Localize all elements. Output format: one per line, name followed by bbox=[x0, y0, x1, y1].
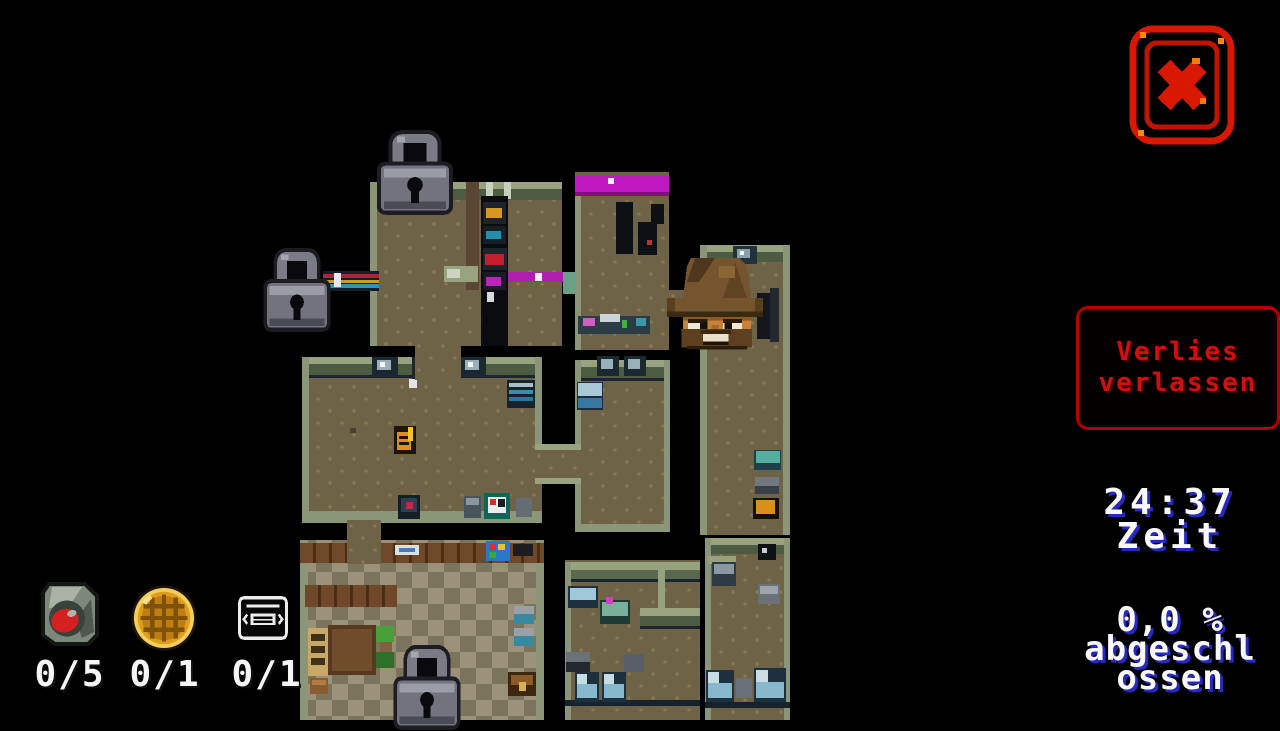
close-button[interactable] bbox=[1128, 24, 1236, 146]
corridor-mid-link-wall-top bbox=[535, 444, 581, 450]
ceiling-camera-d2-dot bbox=[468, 362, 473, 367]
yellow-crate-top bbox=[756, 500, 775, 514]
floor-speck bbox=[350, 428, 356, 433]
g-passage-wall-line bbox=[640, 626, 700, 629]
dark-cabinet-side bbox=[770, 288, 779, 342]
blue-cabinet-top bbox=[578, 383, 602, 396]
h-bed-1-sheet bbox=[708, 683, 732, 698]
h-grey-box bbox=[736, 678, 752, 698]
timer-value: 24:37 bbox=[1060, 486, 1280, 520]
corridor-bottom-left bbox=[347, 520, 381, 564]
timer-label: Zeit bbox=[1060, 520, 1280, 554]
counter-item-toy-red bbox=[489, 544, 496, 550]
stairs-step-3 bbox=[509, 397, 533, 401]
room-bottom-mid-top-wall-line bbox=[565, 579, 700, 582]
g-table-item bbox=[606, 597, 613, 604]
counter-item-tape-stripe bbox=[399, 548, 415, 552]
room-bottom-mid-top-wall-light bbox=[565, 562, 700, 570]
g-bed-3-sheet bbox=[604, 684, 624, 698]
machine-white-bit bbox=[487, 292, 494, 302]
tv-dot-red bbox=[490, 499, 496, 505]
shop-device-1-top bbox=[514, 606, 534, 614]
g-passage-wall-dark bbox=[640, 616, 700, 626]
room-top-right-magenta-dark bbox=[575, 192, 669, 196]
bookshelf-slot-2 bbox=[311, 646, 325, 653]
room-bottom-mid-top-wall-dark bbox=[565, 570, 700, 579]
console-box-dot bbox=[406, 502, 413, 509]
g-bed-2-sheet bbox=[577, 684, 597, 698]
server-red-dot bbox=[647, 240, 652, 245]
room-mid-right-top-wall-line bbox=[575, 378, 670, 381]
plant-top bbox=[376, 626, 394, 642]
lab-desk-item-pink bbox=[583, 318, 595, 326]
g-passage-wall-light bbox=[640, 608, 700, 616]
g-machine-2 bbox=[624, 654, 644, 672]
magenta-door-dot bbox=[535, 273, 542, 281]
waffle-count: 0/1 bbox=[120, 654, 210, 695]
vhs-tape-count: 0/1 bbox=[222, 654, 312, 695]
padlock-icon-2 bbox=[261, 248, 333, 333]
room-bottom-left-right-wall bbox=[536, 540, 544, 720]
enemy-alert bbox=[408, 427, 413, 441]
waffle-icon bbox=[128, 583, 200, 653]
room-mid-left-left-wall bbox=[302, 357, 309, 523]
enemy-stripe-2 bbox=[399, 442, 409, 445]
teal-door bbox=[563, 272, 576, 294]
machine-red bbox=[485, 254, 504, 265]
h-bottom-line bbox=[705, 702, 790, 708]
ceiling-camera-d1-dot bbox=[380, 362, 385, 367]
security-button-icon bbox=[32, 578, 108, 650]
room-bottom-right-top-wall-light bbox=[705, 538, 790, 545]
counter-item-toy-green bbox=[489, 552, 496, 558]
game-screen: 0/5 0/1 bbox=[0, 0, 1280, 720]
shop-device-2-top bbox=[514, 628, 534, 636]
padlock-icon-1 bbox=[374, 130, 456, 216]
h-bed-1-pillow bbox=[708, 672, 719, 683]
h-bed-2-pillow bbox=[756, 670, 768, 682]
machine-yellow bbox=[486, 208, 502, 218]
wall-ledge-inner bbox=[447, 269, 460, 278]
exit-button-label-line1: Verlies bbox=[1116, 337, 1240, 368]
collectible-security-button bbox=[32, 578, 108, 650]
teal-table-top bbox=[756, 451, 780, 463]
server-pillar-3 bbox=[651, 204, 664, 224]
corridor-mid-link bbox=[535, 450, 581, 478]
player-marker-hopper-head bbox=[663, 250, 767, 350]
lab-desk-item-green bbox=[622, 320, 627, 328]
shop-counter-2 bbox=[305, 585, 397, 607]
counter-item-toy-yellow bbox=[498, 544, 505, 550]
corridor-top bbox=[415, 340, 461, 380]
g-bed-2-pillow bbox=[577, 674, 587, 684]
security-button-count: 0/5 bbox=[20, 654, 120, 695]
g-machine-1-dark bbox=[566, 662, 590, 672]
stairs-step-1 bbox=[509, 383, 533, 387]
h-cabinet-top bbox=[714, 564, 734, 574]
room-mid-right-top-wall-dark bbox=[575, 367, 670, 378]
machine-teal bbox=[486, 231, 501, 239]
room-mid-right-top-wall-light bbox=[575, 360, 670, 367]
counter-item-dark bbox=[513, 544, 533, 556]
grey-device-base bbox=[755, 486, 779, 494]
close-x-icon bbox=[1128, 24, 1236, 146]
collectible-vhs-tape bbox=[238, 596, 288, 640]
g-divider-wall bbox=[658, 562, 665, 610]
grey-machine-2 bbox=[516, 498, 532, 517]
h-grey-device-top bbox=[760, 586, 778, 594]
shop-rug-inner bbox=[332, 629, 372, 671]
lab-desk-item-white bbox=[600, 314, 620, 322]
ceiling-camera-e1-lens bbox=[601, 359, 613, 369]
room-top-right-magenta-band bbox=[575, 176, 669, 192]
hopper-head-icon bbox=[663, 250, 767, 350]
lab-desk-item-teal bbox=[636, 318, 646, 326]
g-table-top bbox=[602, 602, 628, 616]
collectible-waffle bbox=[128, 583, 200, 653]
room-mid-right-right-wall bbox=[664, 360, 670, 532]
h-black-box bbox=[758, 544, 776, 560]
tv-dot-black bbox=[498, 499, 505, 507]
h-black-box-dot bbox=[762, 548, 767, 553]
server-pillar-2 bbox=[638, 222, 657, 255]
bookshelf-slot-1 bbox=[311, 634, 325, 641]
g-bed-1-top bbox=[570, 588, 596, 600]
ceiling-camera-e2-lens bbox=[628, 359, 640, 369]
grey-machine-1-top bbox=[466, 498, 479, 505]
room-mid-right-bottom-wall bbox=[575, 524, 670, 532]
exit-button-label-line2: verlassen bbox=[1099, 368, 1258, 399]
wooden-chest-lock bbox=[519, 682, 526, 691]
progress-block: 0,0 % abgeschl ossen bbox=[1060, 606, 1280, 693]
room-top-right-band-dot bbox=[608, 178, 614, 184]
room-mid-left-right-wall bbox=[535, 357, 542, 452]
corridor-left-knob bbox=[334, 273, 341, 287]
exit-dungeon-button[interactable]: Verlies verlassen bbox=[1076, 306, 1280, 430]
stairs-step-2 bbox=[509, 390, 533, 394]
vhs-tape-icon bbox=[238, 596, 288, 640]
g-bed-3-pillow bbox=[604, 674, 614, 684]
machine-magenta bbox=[486, 277, 501, 286]
hanging-lamp bbox=[409, 379, 417, 388]
corridor-mid-link-wall-bottom bbox=[535, 478, 581, 484]
h-bed-2-sheet bbox=[756, 682, 784, 698]
room-bottom-right-top-wall-dark bbox=[705, 545, 790, 554]
server-pillar-1 bbox=[616, 202, 633, 254]
bookshelf-slot-3 bbox=[311, 658, 325, 665]
blue-cabinet-front bbox=[578, 398, 602, 408]
timer-block: 24:37 Zeit bbox=[1060, 486, 1280, 554]
room-right-right-wall bbox=[783, 245, 790, 535]
padlock-icon-3 bbox=[391, 645, 463, 731]
small-crate-lid bbox=[312, 680, 326, 685]
